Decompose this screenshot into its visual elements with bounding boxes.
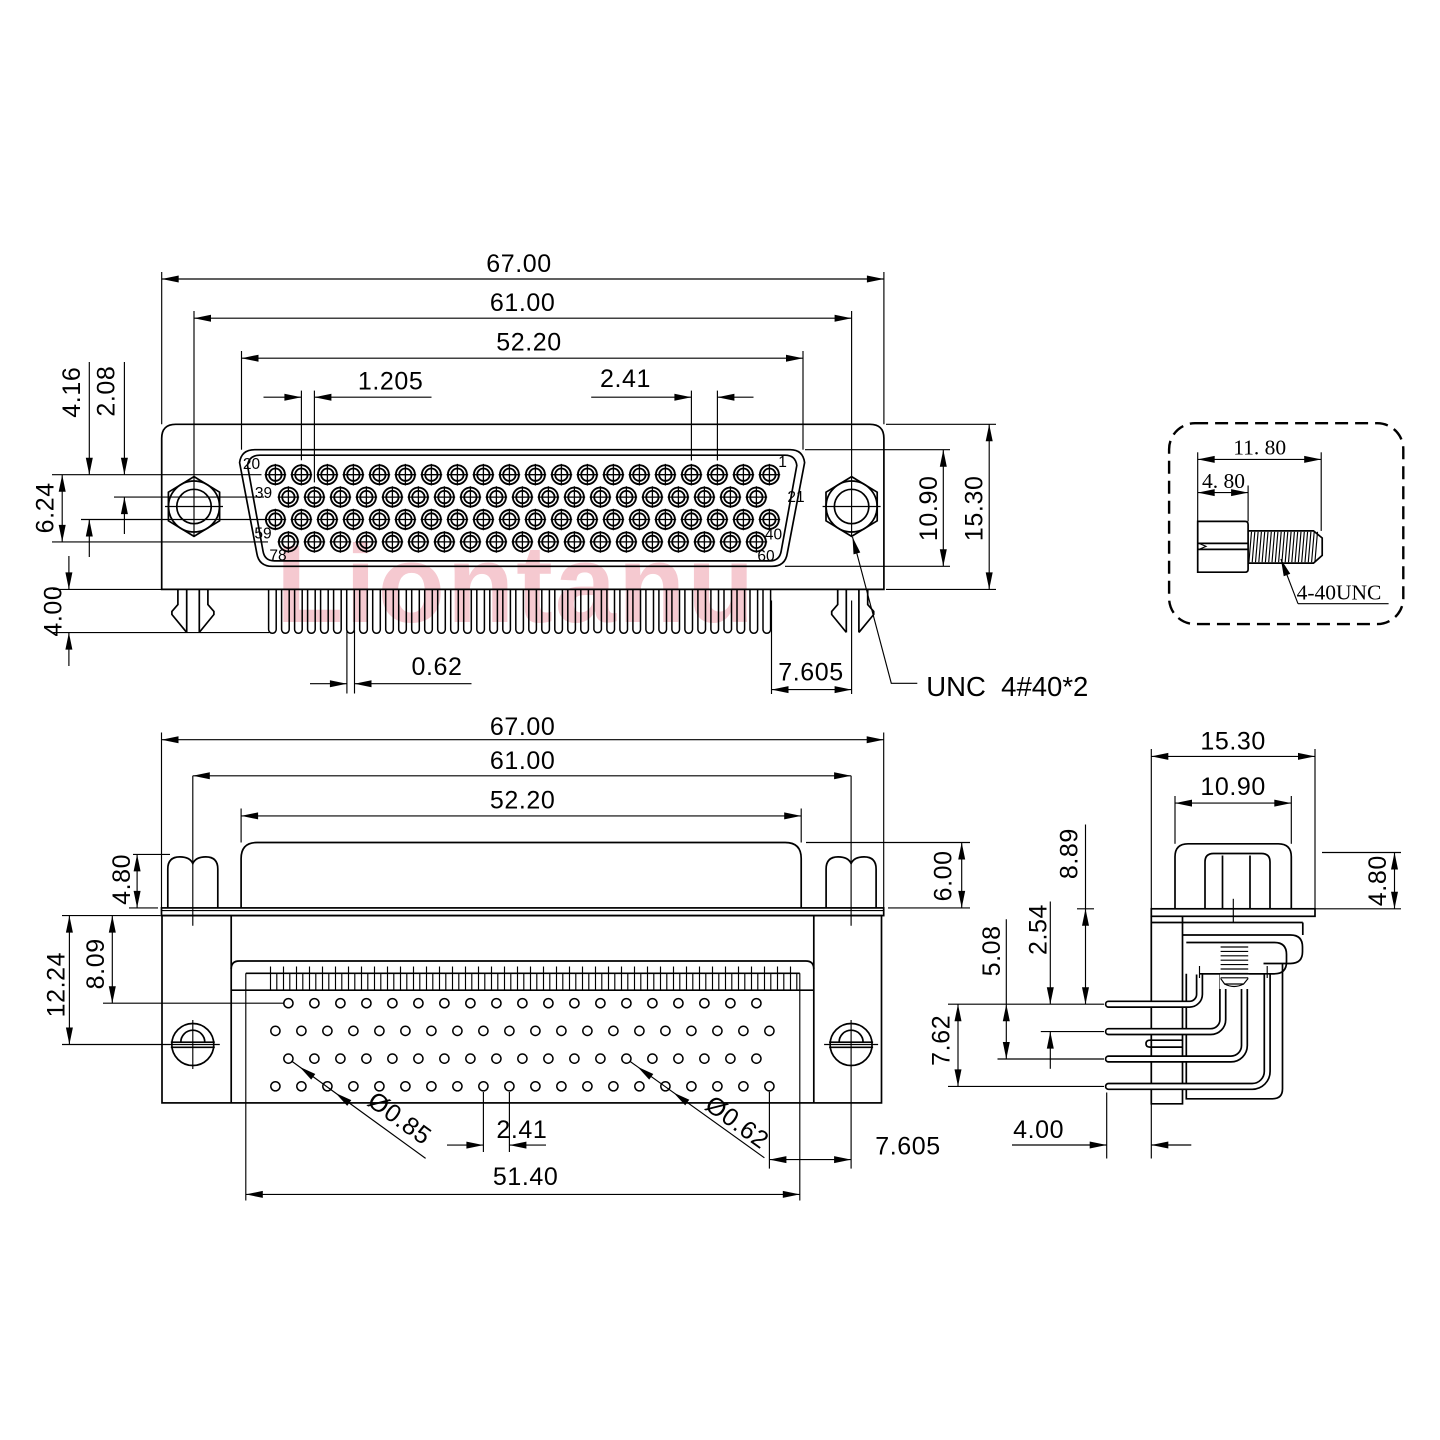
svg-text:10.90: 10.90 — [915, 476, 943, 542]
svg-text:39: 39 — [255, 485, 272, 502]
svg-text:UNC 4#40*2: UNC 4#40*2 — [926, 671, 1088, 702]
svg-text:8.09: 8.09 — [82, 938, 110, 989]
svg-text:2.41: 2.41 — [496, 1116, 547, 1144]
svg-text:60: 60 — [757, 548, 775, 565]
svg-text:67.00: 67.00 — [486, 250, 552, 278]
svg-text:4.00: 4.00 — [1013, 1116, 1064, 1144]
svg-text:5.08: 5.08 — [978, 925, 1006, 976]
svg-text:52.20: 52.20 — [490, 787, 556, 815]
svg-text:7.605: 7.605 — [778, 659, 844, 687]
svg-text:52.20: 52.20 — [496, 329, 562, 357]
svg-text:4.80: 4.80 — [108, 854, 136, 905]
svg-text:4-40UNC: 4-40UNC — [1297, 581, 1382, 605]
svg-text:4. 80: 4. 80 — [1202, 469, 1245, 493]
svg-text:7.62: 7.62 — [927, 1015, 955, 1066]
svg-text:1: 1 — [778, 454, 787, 471]
svg-text:4.16: 4.16 — [58, 367, 86, 418]
svg-text:4.00: 4.00 — [39, 586, 67, 637]
svg-text:11. 80: 11. 80 — [1233, 436, 1286, 460]
svg-text:2.08: 2.08 — [93, 366, 121, 417]
svg-text:2.54: 2.54 — [1025, 904, 1053, 955]
svg-text:40: 40 — [765, 527, 783, 544]
svg-text:Ø0.85: Ø0.85 — [363, 1086, 437, 1150]
svg-text:21: 21 — [787, 489, 804, 506]
svg-text:4.80: 4.80 — [1364, 855, 1392, 906]
svg-text:7.605: 7.605 — [875, 1132, 941, 1160]
svg-text:10.90: 10.90 — [1200, 773, 1266, 801]
svg-text:20: 20 — [243, 456, 261, 473]
svg-text:59: 59 — [254, 526, 271, 543]
svg-text:6.00: 6.00 — [929, 850, 957, 901]
svg-text:67.00: 67.00 — [490, 713, 556, 741]
svg-text:51.40: 51.40 — [493, 1163, 559, 1191]
svg-text:61.00: 61.00 — [490, 289, 556, 317]
svg-text:6.24: 6.24 — [32, 482, 60, 533]
svg-text:2.41: 2.41 — [600, 365, 651, 393]
svg-text:61.00: 61.00 — [490, 747, 556, 775]
svg-text:0.62: 0.62 — [411, 653, 462, 681]
svg-text:8.89: 8.89 — [1056, 828, 1084, 879]
svg-text:1.205: 1.205 — [358, 368, 424, 396]
svg-text:78: 78 — [269, 548, 286, 565]
svg-text:15.30: 15.30 — [1200, 728, 1266, 756]
svg-text:15.30: 15.30 — [961, 476, 989, 542]
svg-text:12.24: 12.24 — [43, 952, 71, 1018]
svg-text:Ø0.62: Ø0.62 — [700, 1090, 774, 1154]
